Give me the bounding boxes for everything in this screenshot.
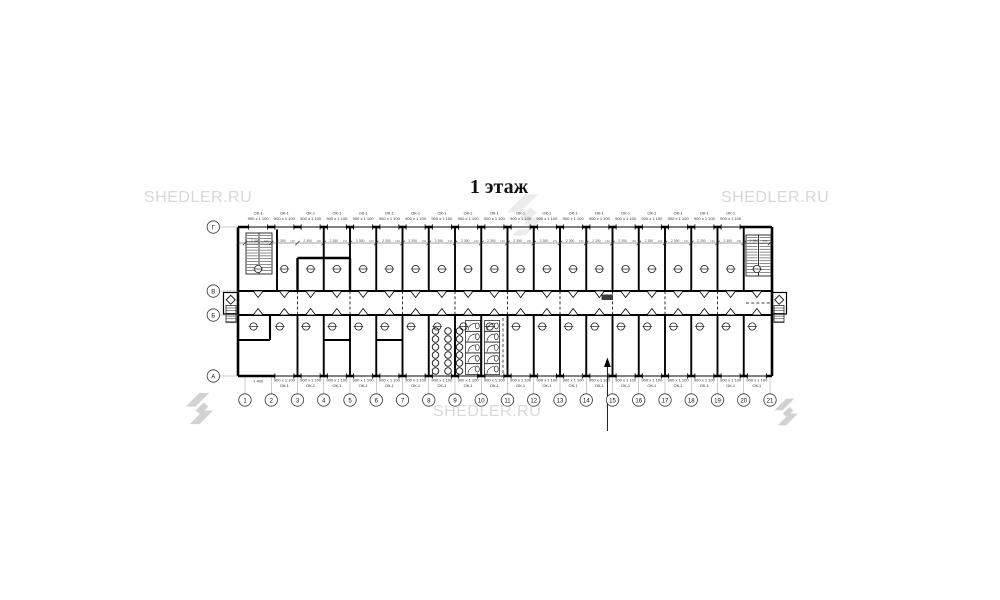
door-swing-wedge xyxy=(253,291,263,298)
wc-stall-door-arc xyxy=(468,356,476,363)
corridor-tag-box xyxy=(602,295,614,301)
grid-column-number: 20 xyxy=(740,398,747,404)
door-swing-wedge xyxy=(542,291,552,298)
window-size-label: 900 x 1 100 xyxy=(431,216,453,221)
grid-column-number: 14 xyxy=(583,398,590,404)
dimension-text: 190 xyxy=(421,239,426,243)
window-size-label: 900 x 1 100 xyxy=(484,378,506,383)
dimension-text: 190 xyxy=(763,239,768,243)
dimension-text: 190 xyxy=(736,239,741,243)
door-swing-wedge xyxy=(411,291,421,298)
shedler-logo-icon xyxy=(774,399,797,426)
dimension-text: 2 390 xyxy=(513,239,522,243)
window-size-label: 900 x 1 100 xyxy=(405,378,427,383)
dimension-text: 190 xyxy=(631,239,636,243)
dryer-coil-symbol xyxy=(445,368,452,375)
dimension-text: 190 xyxy=(526,239,531,243)
logo-chevron-shape xyxy=(774,399,794,411)
window-mark-label: ОК-1 xyxy=(464,383,474,388)
dryer-coil-symbol xyxy=(456,352,463,359)
wc-toilet-symbol xyxy=(494,345,498,351)
door-swing-wedge xyxy=(253,309,263,316)
door-swing-wedge xyxy=(542,309,552,316)
window-mark-label: ОК-1 xyxy=(542,211,552,216)
window-mark-label: ОК-1 xyxy=(621,211,631,216)
window-size-label: 900 x 1 100 xyxy=(353,378,375,383)
window-mark-label: ОК-1 xyxy=(674,211,684,216)
door-swing-wedge xyxy=(279,291,289,298)
window-mark-label: ОК-1 xyxy=(647,211,657,216)
window-mark-label: ОК-1 xyxy=(280,211,290,216)
door-swing-wedge xyxy=(306,291,316,298)
entrance-diamond-icon xyxy=(226,295,235,304)
drawing-canvas: SHEDLER.RU SHEDLER.RU 1 этаж 2 3901902 3… xyxy=(0,0,1000,600)
grid-column-number: 16 xyxy=(635,398,642,404)
window-mark-label: ОК-1 xyxy=(411,383,421,388)
dimension-text: 190 xyxy=(369,239,374,243)
window-mark-label: ОК-1 xyxy=(306,211,316,216)
dryer-coil-symbol xyxy=(432,360,439,367)
window-mark-label: ОК-1 xyxy=(595,211,605,216)
window-size-label: 900 x 1 100 xyxy=(746,378,768,383)
window-mark-label: ОК-1 xyxy=(752,383,762,388)
dimension-text: 190 xyxy=(290,239,295,243)
window-mark-label: ОК-1 xyxy=(490,383,500,388)
wc-stall-door-arc xyxy=(468,334,476,341)
grid-column-number: 18 xyxy=(688,398,695,404)
section-cut-arrow xyxy=(604,358,611,368)
door-swing-wedge xyxy=(516,309,526,316)
door-swing-wedge xyxy=(358,291,368,298)
wc-stall xyxy=(466,342,481,353)
dimension-text: 2 390 xyxy=(671,239,680,243)
dimension-text: 2 390 xyxy=(330,239,339,243)
wc-stall xyxy=(466,331,481,342)
dryer-coil-symbol xyxy=(445,352,452,359)
window-mark-label: ОК-1 xyxy=(621,383,631,388)
wc-stall-door-arc xyxy=(468,323,476,330)
window-size-label: 900 x 1 100 xyxy=(379,378,401,383)
dryer-coil-symbol xyxy=(445,328,452,335)
wc-toilet-symbol xyxy=(494,355,498,361)
wc-stall-door-arc xyxy=(487,356,495,363)
wc-stall xyxy=(485,364,500,375)
door-swing-wedge xyxy=(726,291,736,298)
window-mark-label: ОК-1 xyxy=(700,383,710,388)
door-swing-wedge xyxy=(568,291,578,298)
window-size-label: 900 x 1 100 xyxy=(641,378,663,383)
window-mark-label: ОК-1 xyxy=(464,211,474,216)
wc-stall-door-arc xyxy=(468,367,476,374)
wc-stall xyxy=(466,321,481,332)
grid-row-letter: В xyxy=(211,289,215,295)
dimension-text: 190 xyxy=(710,239,715,243)
window-size-label: 900 x 1 100 xyxy=(458,378,480,383)
wc-toilet-symbol xyxy=(475,366,479,372)
grid-column-number: 17 xyxy=(662,398,669,404)
window-mark-label: ОК-1 xyxy=(332,383,342,388)
dimension-text: 2 390 xyxy=(356,239,365,243)
wc-stall-door-arc xyxy=(468,345,476,352)
dimension-text: 2 390 xyxy=(487,239,496,243)
door-swing-wedge xyxy=(437,309,447,316)
window-size-label: 900 x 1 100 xyxy=(668,378,690,383)
window-size-label: 900 x 1 100 xyxy=(720,378,742,383)
window-size-label: 900 x 1 100 xyxy=(694,216,716,221)
door-swing-wedge xyxy=(279,309,289,316)
dimension-text: 2 390 xyxy=(435,239,444,243)
window-mark-label: ОК-1 xyxy=(385,383,395,388)
door-swing-wedge xyxy=(463,291,473,298)
dryer-coil-symbol xyxy=(445,344,452,351)
window-mark-label: ОК-1 xyxy=(595,383,605,388)
window-mark-label: ОК-1 xyxy=(647,383,657,388)
door-swing-wedge xyxy=(673,291,683,298)
dimension-text: 190 xyxy=(395,239,400,243)
dimension-text: 2 390 xyxy=(566,239,575,243)
door-swing-wedge xyxy=(516,291,526,298)
window-size-label: 900 x 1 100 xyxy=(536,378,558,383)
entrance-diamond-icon xyxy=(775,295,784,304)
wc-stall-door-arc xyxy=(487,367,495,374)
window-mark-label: ОК-1 xyxy=(359,383,369,388)
dryer-coil-symbol xyxy=(456,336,463,343)
dryer-coil-symbol xyxy=(432,336,439,343)
window-size-label: 900 x 1 100 xyxy=(431,378,453,383)
wc-stall xyxy=(485,353,500,364)
grid-row-letter: Б xyxy=(211,313,215,319)
dimension-text: 190 xyxy=(500,239,505,243)
dryer-coil-symbol xyxy=(445,360,452,367)
dimension-text: 2 390 xyxy=(408,239,417,243)
grid-column-number: 15 xyxy=(609,398,616,404)
window-size-label: 900 x 1 100 xyxy=(694,378,716,383)
dryer-coil-symbol xyxy=(456,368,463,375)
wc-stall xyxy=(485,342,500,353)
window-mark-label: ОК-1 xyxy=(306,383,316,388)
window-size-label: 900 x 1 100 xyxy=(510,378,532,383)
window-mark-label: ОК-1 xyxy=(700,211,710,216)
window-size-label: 900 x 1 100 xyxy=(589,216,611,221)
window-size-label: 900 x 1 100 xyxy=(300,216,322,221)
door-swing-wedge xyxy=(621,309,631,316)
dimension-text: 2 390 xyxy=(277,239,286,243)
window-mark-label: ОК-1 xyxy=(569,383,579,388)
wc-stall-door-arc xyxy=(487,334,495,341)
dryer-coil-symbol xyxy=(445,336,452,343)
shedler-logo-icon xyxy=(186,393,213,424)
door-swing-wedge xyxy=(699,291,709,298)
dimension-text: 190 xyxy=(579,239,584,243)
window-size-label: 900 x 1 100 xyxy=(405,216,427,221)
dimension-text: 2 390 xyxy=(461,239,470,243)
dimension-text: 190 xyxy=(264,239,269,243)
window-size-label: 900 x 1 100 xyxy=(379,216,401,221)
dimension-text: 2 390 xyxy=(540,239,549,243)
door-swing-wedge xyxy=(489,309,499,316)
dimension-text: 2 390 xyxy=(382,239,391,243)
dimension-text: 190 xyxy=(605,239,610,243)
window-mark-label: ОК-1 xyxy=(490,211,500,216)
window-mark-label: ОК-1 xyxy=(254,211,264,216)
dryer-coil-symbol xyxy=(432,368,439,375)
wc-stall xyxy=(466,364,481,375)
door-swing-wedge xyxy=(647,309,657,316)
window-size-label: 900 x 1 100 xyxy=(720,216,742,221)
window-mark-label: ОК-1 xyxy=(385,211,395,216)
window-size-label: 900 x 1 100 xyxy=(563,216,585,221)
door-swing-wedge xyxy=(384,309,394,316)
door-swing-wedge xyxy=(568,309,578,316)
dimension-text: 2 390 xyxy=(251,239,260,243)
dryer-coil-symbol xyxy=(456,344,463,351)
grid-column-number: 21 xyxy=(767,398,774,404)
window-size-label: 900 x 1 100 xyxy=(458,216,480,221)
floor-plan-drawing: 2 3901902 3901902 3901902 3901902 390190… xyxy=(0,0,1000,600)
window-size-label: 900 x 1 100 xyxy=(326,216,348,221)
window-mark-label: ОК-1 xyxy=(332,211,342,216)
dimension-text: 190 xyxy=(553,239,558,243)
window-mark-label: ОК-1 xyxy=(437,211,447,216)
window-size-label: 900 x 1 100 xyxy=(353,216,375,221)
window-size-label: 900 x 1 100 xyxy=(274,378,296,383)
dryer-coil-symbol xyxy=(432,352,439,359)
window-mark-label: ОК-1 xyxy=(516,211,526,216)
dimension-text: 2 390 xyxy=(723,239,732,243)
window-size-label: 900 x 1 100 xyxy=(536,216,558,221)
door-swing-wedge xyxy=(332,309,342,316)
window-size-label: 900 x 1 100 xyxy=(615,216,637,221)
window-mark-label: ОК-1 xyxy=(542,383,552,388)
door-swing-wedge xyxy=(673,309,683,316)
dimension-text: 190 xyxy=(658,239,663,243)
door-swing-wedge xyxy=(752,309,762,316)
window-mark-label: ОК-1 xyxy=(569,211,579,216)
dimension-text: 190 xyxy=(684,239,689,243)
door-swing-wedge xyxy=(411,309,421,316)
door-swing-wedge xyxy=(463,309,473,316)
dryer-coil-symbol xyxy=(456,328,463,335)
window-size-label: 900 x 1 100 xyxy=(274,216,296,221)
door-swing-wedge xyxy=(647,291,657,298)
wc-toilet-symbol xyxy=(494,323,498,329)
window-mark-label: ОК-1 xyxy=(359,211,369,216)
door-swing-wedge xyxy=(699,309,709,316)
window-mark-label: ОК-1 xyxy=(674,383,684,388)
wc-toilet-symbol xyxy=(475,355,479,361)
wc-toilet-symbol xyxy=(494,334,498,340)
drawing-title: 1 этаж xyxy=(437,176,561,199)
dimension-text: 190 xyxy=(474,239,479,243)
window-size-label: 900 x 1 100 xyxy=(510,216,532,221)
window-size-label: 900 x 1 100 xyxy=(484,216,506,221)
window-size-label: 900 x 1 100 xyxy=(300,378,322,383)
door-swing-wedge xyxy=(306,309,316,316)
dimension-text: 1 400 xyxy=(253,379,264,384)
logo-chevron-shape xyxy=(186,393,210,407)
window-size-label: 900 x 1 100 xyxy=(615,378,637,383)
window-size-label: 900 x 1 100 xyxy=(641,216,663,221)
door-swing-wedge xyxy=(437,291,447,298)
window-mark-label: ОК-1 xyxy=(437,383,447,388)
window-mark-label: ОК-1 xyxy=(280,383,290,388)
wc-toilet-symbol xyxy=(494,366,498,372)
door-swing-wedge xyxy=(594,309,604,316)
dryer-coil-symbol xyxy=(456,360,463,367)
dimension-text: 2 390 xyxy=(303,239,312,243)
door-swing-wedge xyxy=(489,291,499,298)
window-mark-label: ОК-1 xyxy=(516,383,526,388)
window-mark-label: ОК-1 xyxy=(726,383,736,388)
window-size-label: 900 x 1 100 xyxy=(668,216,690,221)
dryer-coil-symbol xyxy=(432,344,439,351)
dimension-text: 190 xyxy=(448,239,453,243)
dimension-text: 2 390 xyxy=(618,239,627,243)
dimension-text: 2 390 xyxy=(697,239,706,243)
window-mark-label: ОК-1 xyxy=(726,211,736,216)
window-size-label: 900 x 1 100 xyxy=(563,378,585,383)
door-swing-wedge xyxy=(621,291,631,298)
door-swing-wedge xyxy=(384,291,394,298)
wc-stall-door-arc xyxy=(487,345,495,352)
dimension-text: 190 xyxy=(343,239,348,243)
watermark-bottom-center: SHEDLER.RU xyxy=(433,403,541,421)
wc-toilet-symbol xyxy=(475,323,479,329)
grid-row-letter: А xyxy=(211,374,215,380)
dimension-text: 190 xyxy=(316,239,321,243)
dimension-text: 2 390 xyxy=(592,239,601,243)
door-swing-wedge xyxy=(358,309,368,316)
wc-toilet-symbol xyxy=(475,345,479,351)
dimension-text: 2 390 xyxy=(750,239,759,243)
wc-stall xyxy=(485,331,500,342)
wc-toilet-symbol xyxy=(475,334,479,340)
window-size-label: 900 x 1 100 xyxy=(248,216,270,221)
grid-column-number: 13 xyxy=(557,398,564,404)
wc-stall xyxy=(466,353,481,364)
window-mark-label: ОК-1 xyxy=(411,211,421,216)
door-swing-wedge xyxy=(752,291,762,298)
door-swing-wedge xyxy=(332,291,342,298)
grid-column-number: 19 xyxy=(714,398,721,404)
window-size-label: 900 x 1 100 xyxy=(326,378,348,383)
dimension-text: 2 390 xyxy=(645,239,654,243)
door-swing-wedge xyxy=(726,309,736,316)
